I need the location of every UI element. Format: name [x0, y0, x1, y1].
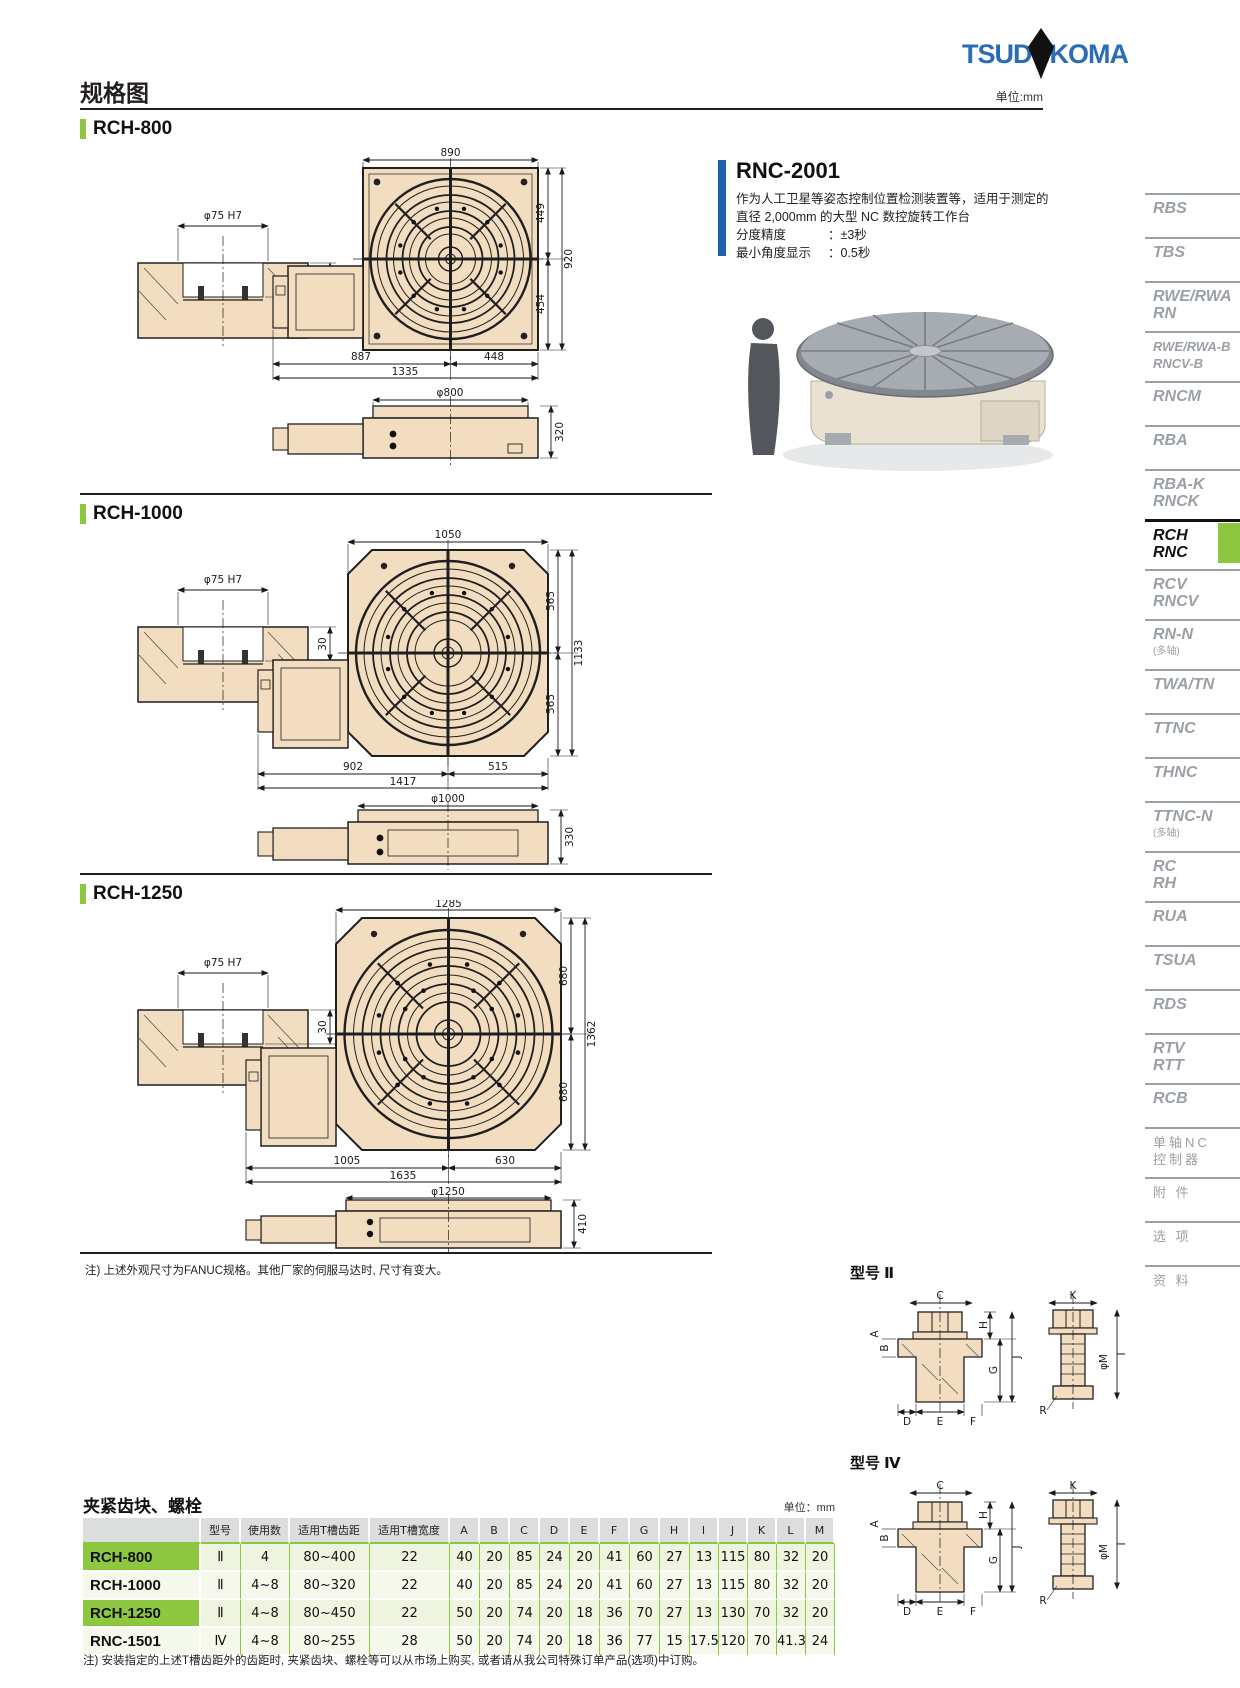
header-col: K — [748, 1518, 777, 1544]
dim-label: I — [1116, 1352, 1128, 1355]
dim-label: 680 — [558, 966, 570, 986]
section-title-rch800: RCH-800 — [80, 118, 172, 140]
dim-label: 565 — [545, 694, 557, 714]
green-bar — [80, 119, 86, 139]
cell: 20 — [480, 1544, 510, 1572]
sidebar-item-rbs[interactable]: RBS — [1145, 193, 1240, 237]
section-separator — [80, 1252, 712, 1254]
dim-label: K — [1070, 1290, 1078, 1302]
header-col: L — [777, 1518, 806, 1544]
cell: 20 — [806, 1600, 835, 1628]
sidebar-item-rua[interactable]: RUA — [1145, 901, 1240, 945]
cell: 27 — [660, 1600, 690, 1628]
sidebar-item-tsua[interactable]: TSUA — [1145, 945, 1240, 989]
dim-label: 30 — [317, 1020, 329, 1033]
cell: 13 — [690, 1544, 719, 1572]
cell: 74 — [510, 1600, 540, 1628]
cell: 24 — [540, 1544, 570, 1572]
sidebar-item-rwe-rwa-rn[interactable]: RWE/RWARN — [1145, 281, 1240, 331]
cell: 32 — [777, 1600, 806, 1628]
cell: 50 — [450, 1600, 480, 1628]
cell: 22 — [370, 1572, 450, 1600]
cell: 85 — [510, 1572, 540, 1600]
rnc2001-product-photo — [733, 283, 1055, 483]
dim-label: E — [937, 1606, 944, 1618]
cell: 13 — [690, 1600, 719, 1628]
header-col: D — [540, 1518, 570, 1544]
cell: 13 — [690, 1572, 719, 1600]
cell: 20 — [806, 1544, 835, 1572]
cell: 4~8 — [241, 1572, 290, 1600]
sidebar-item-thnc[interactable]: THNC — [1145, 757, 1240, 801]
sidebar-item-rncm[interactable]: RNCM — [1145, 381, 1240, 425]
sidebar-item-single-axis-nc[interactable]: 单轴NC控制器 — [1145, 1127, 1240, 1177]
cell: 36 — [600, 1600, 630, 1628]
cell: 80~450 — [290, 1600, 370, 1628]
green-bar — [80, 504, 86, 524]
dim-label: D — [903, 1606, 911, 1618]
cell: 80 — [748, 1572, 777, 1600]
header-col: C — [510, 1518, 540, 1544]
cell: 32 — [777, 1572, 806, 1600]
section-label: RCH-1000 — [93, 503, 183, 525]
sidebar-item-rba[interactable]: RBA — [1145, 425, 1240, 469]
header-col: A — [450, 1518, 480, 1544]
cell: 60 — [630, 1572, 660, 1600]
logo-text-left: TSUD — [962, 39, 1032, 70]
dim-label: 902 — [343, 761, 363, 773]
dim-label: 330 — [564, 827, 576, 847]
rch1000-top-view: 1050 565 565 1133 902 515 1417 — [258, 530, 585, 790]
rnc2001-spec2: 最小角度显示 ：0.5秒 — [736, 244, 870, 262]
unit-label-top: 单位:mm — [948, 88, 1043, 105]
cell: 20 — [480, 1600, 510, 1628]
diamond-icon — [1027, 28, 1055, 80]
dim-label: D — [903, 1416, 911, 1428]
header-rule — [80, 108, 1043, 110]
cell: 60 — [630, 1544, 660, 1572]
dim-label: 1362 — [586, 1021, 598, 1048]
type4-bolt-drawing: C H G J A B D E F — [845, 1474, 1135, 1624]
cell: Ⅱ — [201, 1572, 241, 1600]
dim-label: 890 — [440, 148, 460, 159]
sidebar-item-rtv-rtt[interactable]: RTVRTT — [1145, 1033, 1240, 1083]
cell: 18 — [570, 1600, 600, 1628]
table-row: RCH-800 Ⅱ 4 80~400 22 40 20 85 24 20 41 … — [83, 1544, 835, 1572]
rnc2001-desc2: 直径 2,000mm 的大型 NC 数控旋转工作台 — [736, 208, 1136, 226]
sidebar-item-rc-rh[interactable]: RCRH — [1145, 851, 1240, 901]
dim-label: G — [988, 1366, 1000, 1374]
spec-value: ：±3秒 — [828, 226, 867, 244]
rch800-spec-drawing: φ75 H7 30 — [88, 148, 708, 483]
sidebar-item-rcb[interactable]: RCB — [1145, 1083, 1240, 1127]
dim-label: A — [869, 1330, 881, 1338]
spec-value: ：0.5秒 — [828, 244, 870, 262]
dim-label: 448 — [484, 351, 504, 363]
rotary-table-disc — [797, 312, 1053, 397]
cell: Ⅱ — [201, 1544, 241, 1572]
cell: 27 — [660, 1544, 690, 1572]
dim-label: I — [1116, 1542, 1128, 1545]
dim-label: φ75 H7 — [204, 957, 242, 969]
rch800-side-view: φ800 320 — [273, 387, 566, 466]
header-col: I — [690, 1518, 719, 1544]
dim-label: K — [1070, 1480, 1078, 1492]
section-title-rch1000: RCH-1000 — [80, 503, 183, 525]
sidebar-item-rwe-rwa-b-rncv-b[interactable]: RWE/RWA-BRNCV-B — [1145, 331, 1240, 381]
clamp-table-title: 夹紧齿块、螺栓 — [83, 1492, 202, 1517]
type4-label: 型号 Ⅳ — [850, 1452, 901, 1473]
green-bar — [80, 884, 86, 904]
header-pitch: 适用T槽齿距 — [290, 1518, 370, 1544]
dim-label: B — [879, 1344, 891, 1351]
sidebar-item-ttnc[interactable]: TTNC — [1145, 713, 1240, 757]
header-col: G — [630, 1518, 660, 1544]
cell: 4~8 — [241, 1600, 290, 1628]
table-row: RCH-1250 Ⅱ 4~8 80~450 22 50 20 74 20 18 … — [83, 1600, 835, 1628]
cell: 22 — [370, 1600, 450, 1628]
cell: 85 — [510, 1544, 540, 1572]
cell: 4 — [241, 1544, 290, 1572]
cell: 20 — [570, 1572, 600, 1600]
section-separator — [80, 873, 712, 875]
tsudakoma-logo: TSUD KOMA — [962, 28, 1128, 80]
rnc2001-title: RNC-2001 — [736, 158, 840, 184]
dim-label: J — [1011, 1545, 1023, 1549]
dim-label: 454 — [535, 294, 547, 314]
cell: 27 — [660, 1572, 690, 1600]
dim-label: G — [988, 1556, 1000, 1564]
dim-label: F — [970, 1606, 976, 1618]
cell: 80~320 — [290, 1572, 370, 1600]
cell: 32 — [777, 1544, 806, 1572]
header-blank — [83, 1518, 201, 1544]
person-silhouette — [748, 318, 780, 455]
sidebar-item-accessories[interactable]: 附 件 — [1145, 1177, 1240, 1221]
row-model: RCH-1250 — [83, 1600, 201, 1628]
header-qty: 使用数 — [241, 1518, 290, 1544]
header-col: J — [719, 1518, 748, 1544]
dim-label: φ75 H7 — [204, 574, 242, 586]
dim-label: H — [978, 1321, 990, 1329]
table-row: RCH-1000 Ⅱ 4~8 80~320 22 40 20 85 24 20 … — [83, 1572, 835, 1600]
cell: 20 — [540, 1600, 570, 1628]
dim-label: F — [970, 1416, 976, 1428]
dim-label: φ75 H7 — [204, 210, 242, 222]
dim-label: R — [1039, 1595, 1046, 1607]
header-col: M — [806, 1518, 835, 1544]
sidebar-item-rds[interactable]: RDS — [1145, 989, 1240, 1033]
dim-label: H — [978, 1511, 990, 1519]
logo-text-right: KOMA — [1050, 39, 1129, 70]
dim-label: 1050 — [435, 530, 462, 541]
cell: 20 — [806, 1572, 835, 1600]
dim-label: A — [869, 1520, 881, 1528]
cell: 20 — [480, 1572, 510, 1600]
rch1250-spec-drawing: φ75 H7 30 — [88, 900, 708, 1252]
dim-label: 1335 — [392, 366, 419, 378]
type2-bolt-drawing: C H G J A B D E F — [845, 1284, 1135, 1434]
sidebar-item-materials[interactable]: 资 料 — [1145, 1265, 1240, 1309]
row-model: RCH-1000 — [83, 1572, 201, 1600]
sidebar-item-ttnc-n[interactable]: TTNC-N(多轴) — [1145, 801, 1240, 851]
dim-label: 680 — [558, 1082, 570, 1102]
header-col: H — [660, 1518, 690, 1544]
cell: 80 — [748, 1544, 777, 1572]
sidebar-item-tbs[interactable]: TBS — [1145, 237, 1240, 281]
header-type: 型号 — [201, 1518, 241, 1544]
rch1250-side-view: φ1250 410 — [246, 1186, 589, 1252]
rch1000-spec-drawing: φ75 H7 30 — [88, 530, 708, 870]
model-nav-sidebar: RBS TBS RWE/RWARN RWE/RWA-BRNCV-B RNCM R… — [1145, 193, 1240, 1309]
unit-label-table: 单位：mm — [735, 1499, 835, 1515]
cell: Ⅱ — [201, 1600, 241, 1628]
dim-label: 449 — [535, 203, 547, 223]
dim-label: φM — [1098, 1544, 1110, 1560]
dim-label: 1417 — [390, 776, 417, 788]
cell: 70 — [630, 1600, 660, 1628]
cell: 115 — [719, 1572, 748, 1600]
table-header-row: 型号 使用数 适用T槽齿距 适用T槽宽度 A B C D E F G H I J… — [83, 1518, 835, 1544]
cell: 41 — [600, 1572, 630, 1600]
dim-label: E — [937, 1416, 944, 1428]
dim-label: 30 — [317, 637, 329, 650]
spec-label: 分度精度 — [736, 226, 828, 244]
dim-label: 1635 — [390, 1170, 417, 1182]
header-col: E — [570, 1518, 600, 1544]
blue-bar — [718, 160, 726, 256]
dim-label: 1133 — [573, 640, 585, 667]
header-width: 适用T槽宽度 — [370, 1518, 450, 1544]
fanuc-note: 注) 上述外观尺寸为FANUC规格。其他厂家的伺服马达时, 尺寸有变大。 — [85, 1262, 705, 1278]
dim-label: 565 — [545, 591, 557, 611]
sidebar-item-rn-n[interactable]: RN-N(多轴) — [1145, 619, 1240, 669]
section-separator — [80, 493, 712, 495]
dim-label: 410 — [577, 1214, 589, 1234]
sidebar-item-rba-k-rnck[interactable]: RBA-KRNCK — [1145, 469, 1240, 519]
dim-label: 515 — [488, 761, 508, 773]
dim-label: 630 — [495, 1155, 515, 1167]
dim-label: 320 — [554, 422, 566, 442]
cell: 41 — [600, 1544, 630, 1572]
cell: 80~400 — [290, 1544, 370, 1572]
cell: 130 — [719, 1600, 748, 1628]
rch800-top-view: 890 449 454 920 887 448 1335 — [273, 148, 575, 380]
cell: 115 — [719, 1544, 748, 1572]
spec-label: 最小角度显示 — [736, 244, 828, 262]
cell: 20 — [570, 1544, 600, 1572]
cell: 40 — [450, 1572, 480, 1600]
page-title: 规格图 — [80, 74, 149, 108]
header-col: F — [600, 1518, 630, 1544]
dim-label: 1005 — [334, 1155, 361, 1167]
rnc2001-desc1: 作为人工卫星等姿态控制位置检测装置等，适用于测定的 — [736, 190, 1136, 208]
bottom-note: 注) 安装指定的上述T槽齿距外的齿距时, 夹紧齿块、螺栓等可以从市场上购买, 或… — [83, 1652, 863, 1668]
cell: 22 — [370, 1544, 450, 1572]
sidebar-item-options[interactable]: 选 项 — [1145, 1221, 1240, 1265]
dim-label: φ1250 — [431, 1186, 465, 1198]
cell: 70 — [748, 1600, 777, 1628]
dim-label: φM — [1098, 1354, 1110, 1370]
sidebar-item-rch-rnc-active[interactable]: RCHRNC — [1145, 519, 1240, 569]
dim-label: φ800 — [437, 387, 464, 399]
dim-label: R — [1039, 1405, 1046, 1417]
dim-label: J — [1011, 1355, 1023, 1359]
sidebar-item-rcv-rncv[interactable]: RCVRNCV — [1145, 569, 1240, 619]
cell: 40 — [450, 1544, 480, 1572]
clamp-spec-table: 型号 使用数 适用T槽齿距 适用T槽宽度 A B C D E F G H I J… — [83, 1518, 835, 1656]
rnc2001-spec1: 分度精度 ：±3秒 — [736, 226, 867, 244]
header-col: B — [480, 1518, 510, 1544]
dim-label: 920 — [563, 249, 575, 269]
catalog-page: TSUD KOMA 规格图 单位:mm RCH-800 φ75 H7 30 — [0, 0, 1240, 1688]
rch1000-side-view: φ1000 330 — [258, 793, 576, 870]
section-label: RCH-800 — [93, 118, 172, 140]
cell: 24 — [540, 1572, 570, 1600]
row-model: RCH-800 — [83, 1544, 201, 1572]
dim-label: B — [879, 1534, 891, 1541]
dim-label: 887 — [351, 351, 371, 363]
type2-label: 型号 Ⅱ — [850, 1262, 894, 1283]
sidebar-item-twa-tn[interactable]: TWA/TN — [1145, 669, 1240, 713]
dim-label: 1285 — [435, 900, 462, 910]
